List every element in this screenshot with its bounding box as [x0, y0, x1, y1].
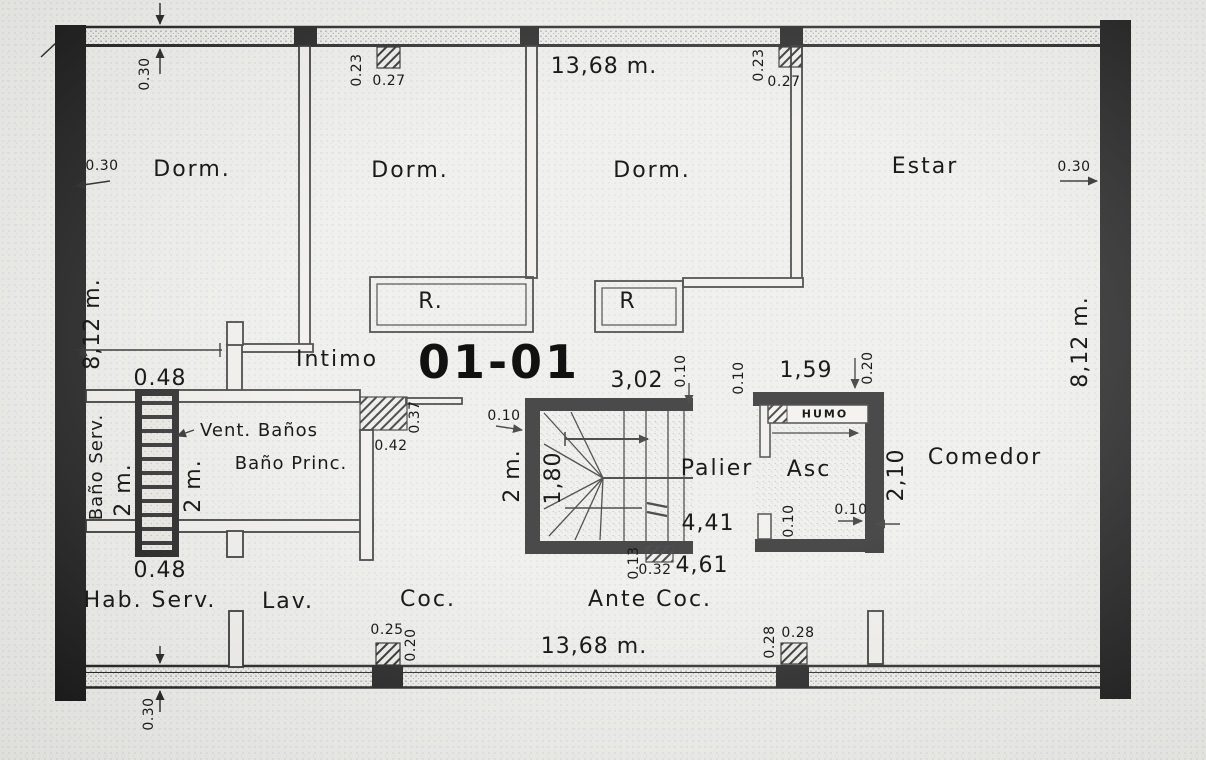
dim-col-stair-a: 0.32: [638, 563, 671, 577]
column: [780, 26, 803, 46]
room-label-hab-serv: Hab. Serv.: [84, 590, 217, 612]
room-label-bano-serv: Baño Serv.: [88, 414, 106, 520]
room-label-lav: Lav.: [262, 591, 314, 613]
dim-bath-princ-depth: 2 m.: [183, 459, 205, 512]
dim-stair-run: 1,80: [543, 452, 565, 505]
room-label-coc: Coc.: [400, 589, 456, 611]
room-label-bano-princ: Baño Princ.: [235, 455, 348, 473]
dim-col-top2-a: 0.23: [752, 48, 766, 81]
dim-off-lift-h: 0.10: [834, 503, 867, 517]
column: [294, 26, 317, 46]
dim-palier-len: 4,41: [682, 513, 735, 535]
room-label-comedor: Comedor: [928, 447, 1042, 469]
dim-wall-bottom: 0.30: [142, 697, 156, 730]
dim-col-bot2-a: 0.28: [763, 625, 777, 658]
label-humo: HUMO: [802, 409, 848, 420]
dim-stair-width: 3,02: [611, 370, 664, 392]
plan-title: 01-01: [418, 339, 580, 385]
room-label-ante-coc: Ante Coc.: [588, 589, 712, 611]
room-label-dorm3: Dorm.: [613, 160, 690, 182]
dim-col-mid-a: 0.42: [374, 439, 407, 453]
dim-bath-serv-depth: 2 m.: [113, 463, 135, 516]
dim-top-total: 13,68 m.: [551, 56, 657, 78]
room-label-asc: Asc: [787, 459, 832, 481]
dim-col-top1-a: 0.23: [350, 53, 364, 86]
dim-lift-depth: 2,10: [886, 449, 908, 502]
vent-shaft: [135, 389, 179, 557]
dim-shaft-bottom: 0.48: [134, 560, 187, 582]
dim-col-top2-b: 0.27: [767, 75, 800, 89]
label-vent-banos: Vent. Baños: [200, 422, 318, 440]
closet-label-1: R.: [418, 291, 444, 313]
dim-bottom-total: 13,68 m.: [541, 636, 647, 658]
dim-off-stair-end: 0.10: [674, 354, 688, 387]
room-label-estar: Estar: [892, 156, 959, 178]
room-label-dorm1: Dorm.: [153, 159, 230, 181]
room-label-dorm2: Dorm.: [371, 160, 448, 182]
room-label-intimo: Intimo: [296, 349, 378, 371]
dim-off-palier: 0.10: [732, 361, 746, 394]
dim-wall-top: 0.30: [138, 57, 152, 90]
column: [776, 665, 809, 688]
dim-col-bot1-b: 0.20: [404, 628, 418, 661]
dim-left-height: 8,12 m.: [82, 278, 104, 369]
dim-off-lift-v: 0.10: [782, 504, 796, 537]
dim-wall-left: 0.30: [85, 159, 118, 173]
dim-col-stair-b: 0.13: [627, 546, 641, 579]
dim-antecoc-len: 4,61: [676, 555, 729, 577]
column: [520, 26, 539, 46]
closet-label-2: R: [619, 291, 636, 313]
dim-stair-depth: 2 m.: [502, 449, 524, 502]
dim-lift-width: 1,59: [780, 360, 833, 382]
dim-shaft-top: 0.48: [134, 368, 187, 390]
right-wall: [1100, 20, 1131, 699]
dim-col-bot2-b: 0.28: [781, 626, 814, 640]
dim-off-stair-left: 0.10: [487, 409, 520, 423]
dim-col-top1-b: 0.27: [372, 74, 405, 88]
dim-col-mid-b: 0.37: [408, 400, 422, 433]
dim-col-bot1-a: 0.25: [370, 623, 403, 637]
room-label-palier: Palier: [681, 458, 754, 480]
column: [372, 665, 403, 688]
dim-right-height: 8,12 m.: [1070, 296, 1092, 387]
dim-lift-wall: 0.20: [861, 351, 875, 384]
floorplan-canvas: 01-01 Dorm. Dorm. Dorm. Estar Intimo Ven…: [0, 0, 1206, 760]
dim-wall-right: 0.30: [1057, 160, 1090, 174]
